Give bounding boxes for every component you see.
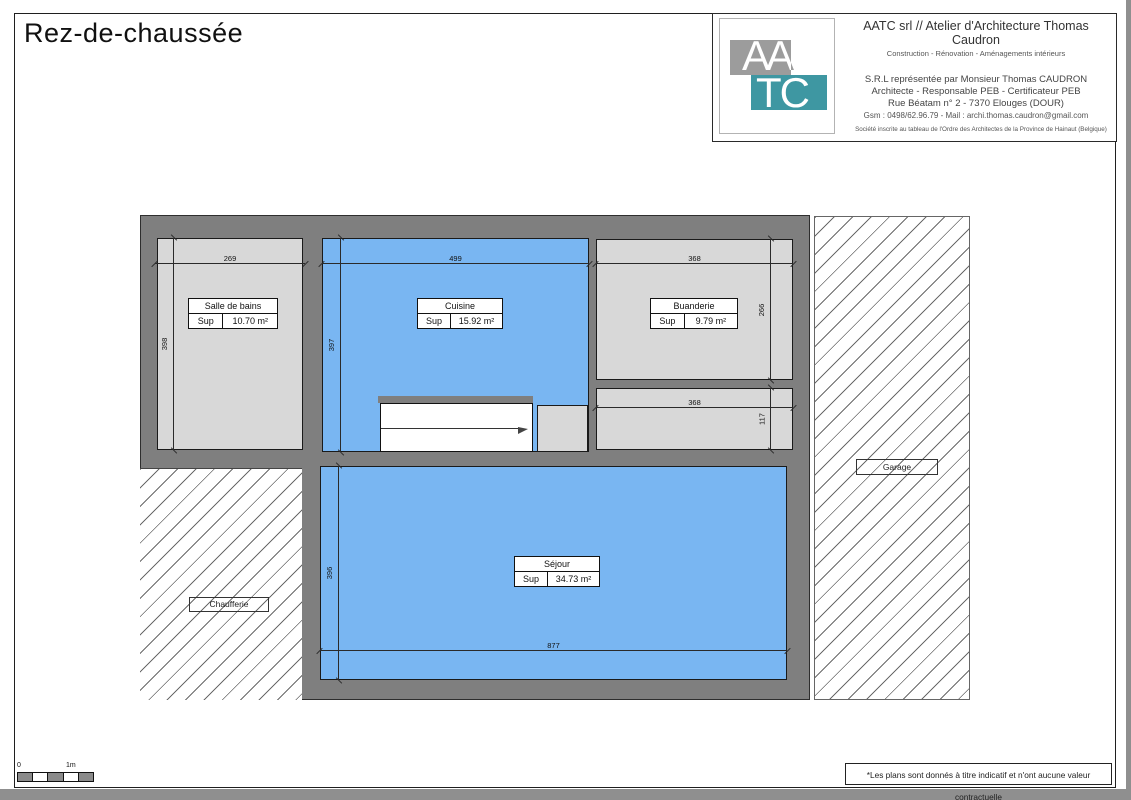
dimension-label: 397 bbox=[327, 339, 336, 352]
room-name: Cuisine bbox=[418, 299, 502, 314]
rep-line2: Architecte - Responsable PEB - Certifica… bbox=[843, 86, 1109, 98]
scale-1m-label: 1m bbox=[66, 762, 76, 769]
room-name: Buanderie bbox=[651, 299, 737, 314]
scale-zero-label: 0 bbox=[17, 762, 21, 769]
room-salle-de-bains bbox=[157, 238, 303, 450]
room-area: 10.70 m² bbox=[223, 314, 277, 328]
dimension-label: 877 bbox=[547, 641, 560, 650]
dimension-label: 396 bbox=[325, 567, 334, 580]
dimension-sdb-width: 269 bbox=[155, 263, 305, 264]
dimension-sejour-width: 877 bbox=[320, 650, 787, 651]
staircase bbox=[380, 403, 533, 452]
label-salle-de-bains: Salle de bains Sup 10.70 m² bbox=[188, 298, 278, 329]
rep-contact: Gsm : 0498/62.96.79 - Mail : archi.thoma… bbox=[843, 110, 1109, 122]
dimension-cuisine-width: 499 bbox=[322, 263, 589, 264]
dimension-buanderie-width: 368 bbox=[596, 263, 793, 264]
firm-services: Construction - Rénovation - Aménagements… bbox=[843, 49, 1109, 58]
firm-name: AATC srl // Atelier d'Architecture Thoma… bbox=[843, 19, 1109, 47]
plan-sheet: Rez-de-chaussée AA AA TC AATC srl // Ate… bbox=[0, 0, 1131, 800]
sup-label: Sup bbox=[515, 572, 548, 586]
page-edge-right bbox=[1126, 0, 1131, 800]
dimension-label: 398 bbox=[160, 338, 169, 351]
room-area: 15.92 m² bbox=[451, 314, 502, 328]
aatc-logo: AA AA TC bbox=[719, 18, 835, 134]
room-landing bbox=[537, 405, 588, 452]
dimension-label: 368 bbox=[688, 398, 701, 407]
stair-direction-arrow bbox=[518, 427, 528, 434]
dimension-label: 117 bbox=[758, 413, 767, 425]
registration-note: Société inscrite au tableau de l'Ordre d… bbox=[853, 126, 1109, 133]
room-name: Séjour bbox=[515, 557, 599, 572]
rep-line1: S.R.L représentée par Monsieur Thomas CA… bbox=[843, 74, 1109, 86]
sup-label: Sup bbox=[418, 314, 451, 328]
sup-label: Sup bbox=[651, 314, 685, 328]
logo-tc-text: TC bbox=[756, 74, 808, 112]
room-area: 9.79 m² bbox=[685, 314, 737, 328]
dimension-hall-height: 117 bbox=[770, 388, 771, 450]
label-cuisine: Cuisine Sup 15.92 m² bbox=[417, 298, 503, 329]
dimension-label: 368 bbox=[688, 254, 701, 263]
dimension-cuisine-height: 397 bbox=[340, 238, 341, 452]
dimension-buanderie-height: 266 bbox=[770, 239, 771, 380]
room-area: 34.73 m² bbox=[548, 572, 599, 586]
sup-label: Sup bbox=[189, 314, 223, 328]
page-title: Rez-de-chaussée bbox=[24, 18, 243, 49]
dimension-sejour-height: 396 bbox=[338, 466, 339, 680]
label-chaufferie: Chaufferie bbox=[189, 597, 269, 612]
rep-line3: Rue Béatam n° 2 - 7370 Elouges (DOUR) bbox=[843, 98, 1109, 110]
stair-direction-line bbox=[381, 428, 519, 429]
dimension-label: 266 bbox=[757, 303, 766, 316]
label-garage: Garage bbox=[856, 459, 938, 475]
label-buanderie: Buanderie Sup 9.79 m² bbox=[650, 298, 738, 329]
dimension-label: 269 bbox=[224, 254, 237, 263]
footer-disclaimer: *Les plans sont donnés à titre indicatif… bbox=[845, 763, 1112, 785]
title-block-text: AATC srl // Atelier d'Architecture Thoma… bbox=[843, 19, 1109, 122]
area-chaufferie-hatch bbox=[140, 468, 302, 700]
dimension-sdb-height: 398 bbox=[173, 238, 174, 450]
area-garage-hatch bbox=[814, 216, 970, 700]
dimension-hall-width: 368 bbox=[596, 407, 793, 408]
room-name: Salle de bains bbox=[189, 299, 277, 314]
title-block: AA AA TC AATC srl // Atelier d'Architect… bbox=[712, 13, 1117, 142]
stair-wall bbox=[378, 396, 533, 403]
label-sejour: Séjour Sup 34.73 m² bbox=[514, 556, 600, 587]
scale-bar bbox=[17, 772, 94, 782]
dimension-label: 499 bbox=[449, 254, 462, 263]
